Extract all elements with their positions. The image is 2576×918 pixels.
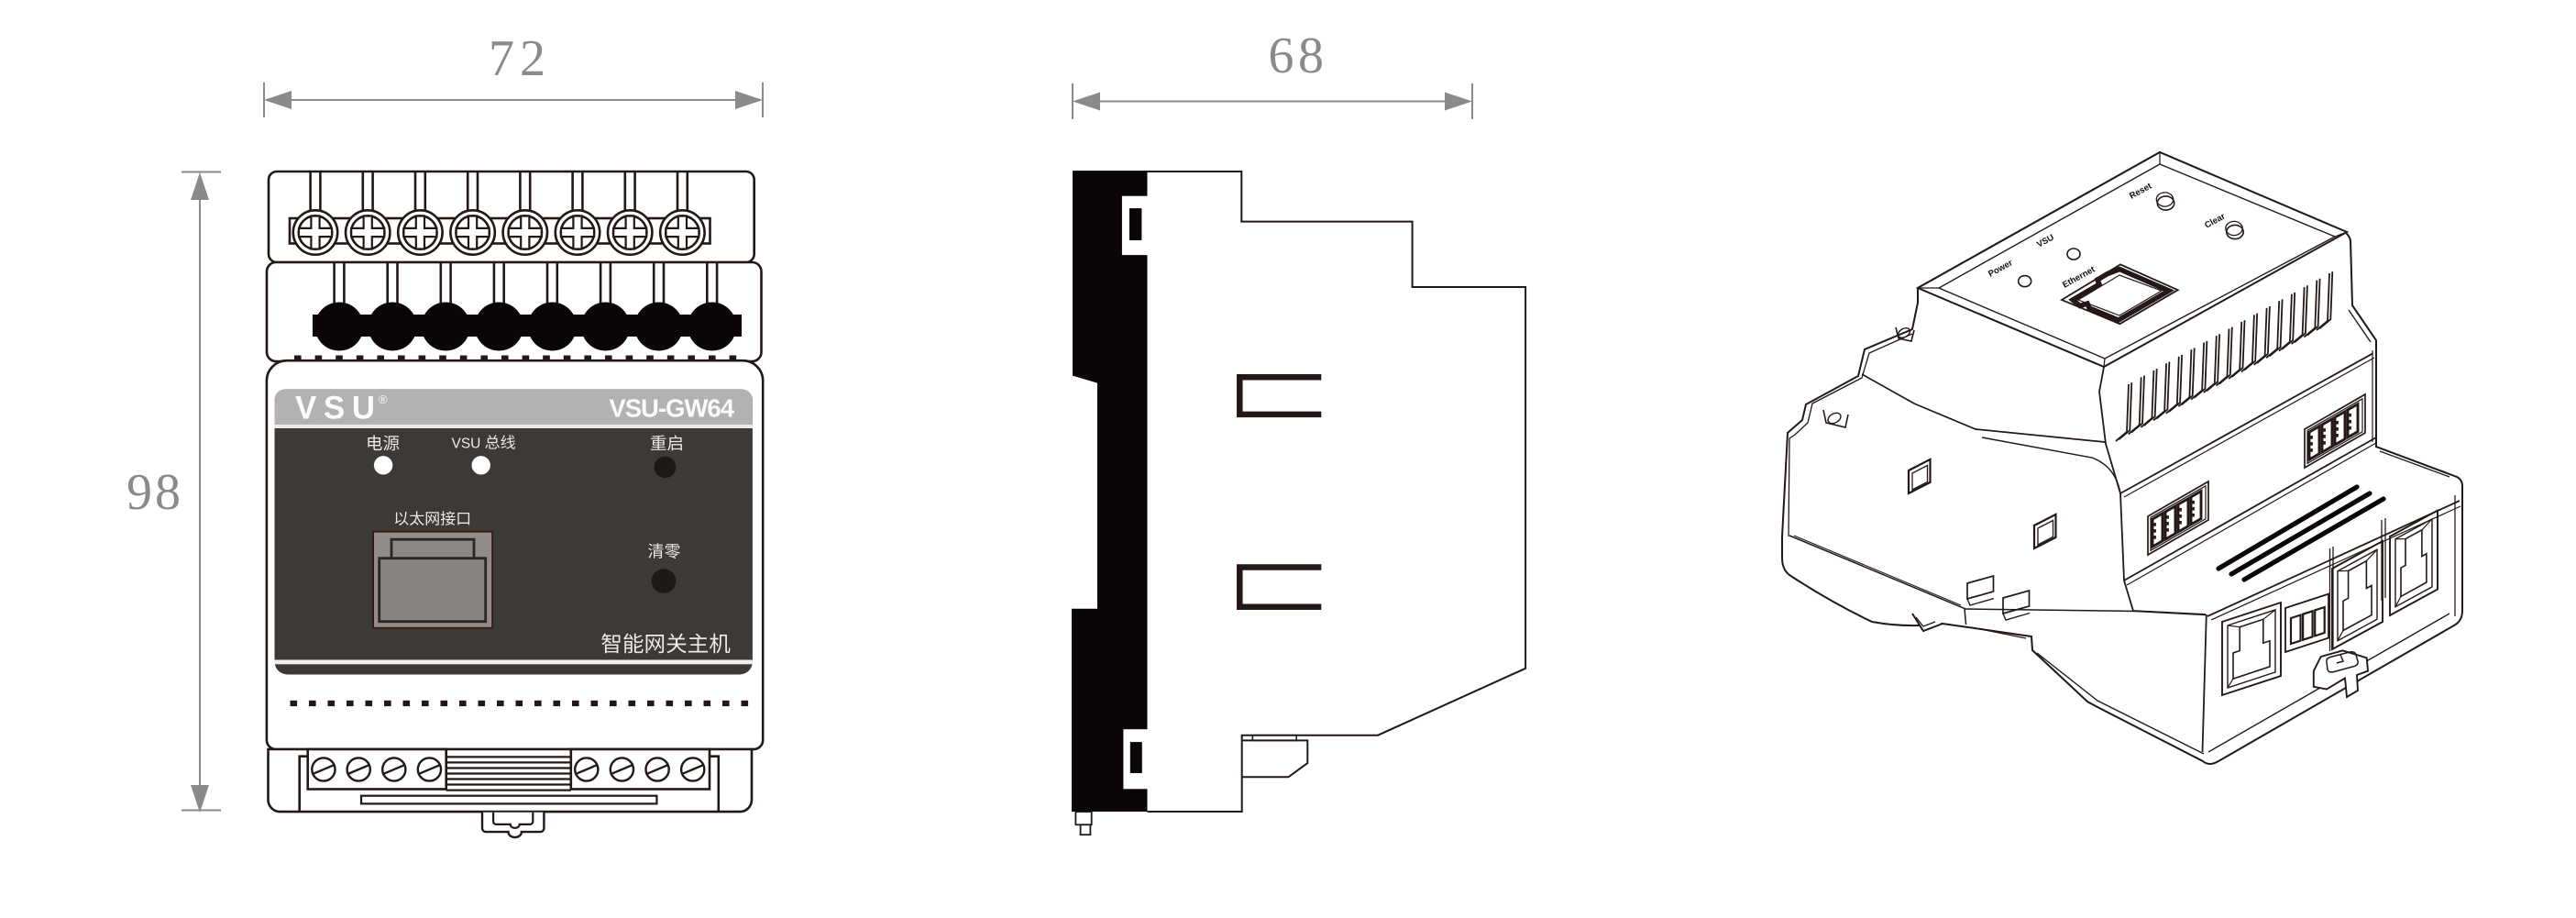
svg-text:68: 68: [1269, 28, 1328, 84]
svg-text:98: 98: [127, 464, 183, 521]
svg-text:VSU-GW64: VSU-GW64: [609, 394, 734, 423]
svg-text:72: 72: [489, 30, 551, 87]
svg-text:VSU: VSU: [452, 437, 481, 452]
svg-text:®: ®: [379, 393, 388, 406]
svg-text:VSU: VSU: [295, 390, 381, 426]
